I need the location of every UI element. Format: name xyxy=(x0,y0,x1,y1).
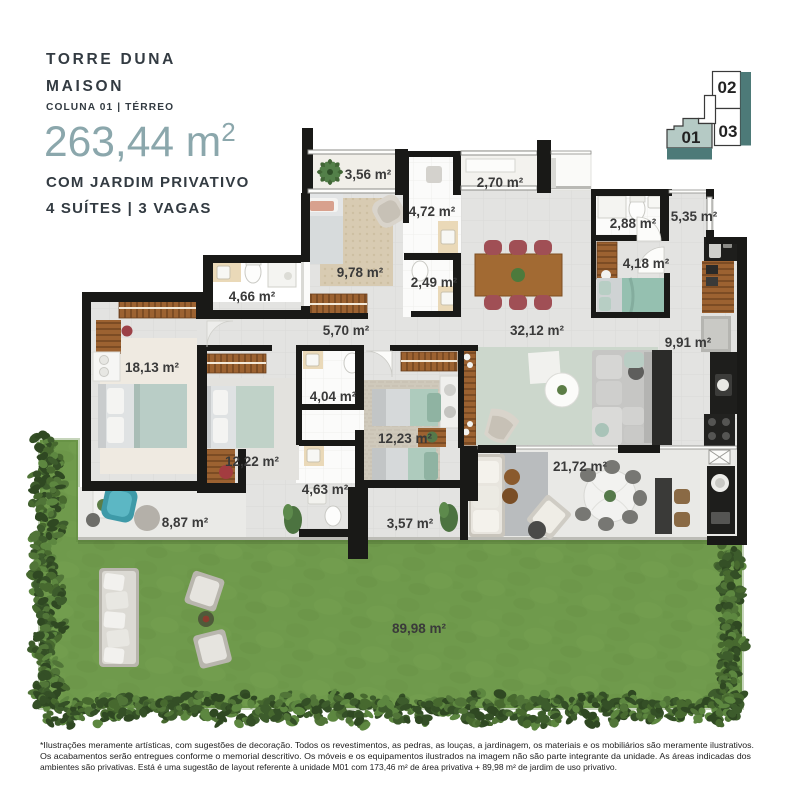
svg-text:MAISON: MAISON xyxy=(46,78,124,95)
svg-text:8,87 m²: 8,87 m² xyxy=(162,515,209,530)
svg-text:32,12 m²: 32,12 m² xyxy=(510,323,565,338)
svg-text:3,56 m²: 3,56 m² xyxy=(345,167,392,182)
svg-text:9,78 m²: 9,78 m² xyxy=(337,265,384,280)
svg-text:2,88 m²: 2,88 m² xyxy=(610,216,657,231)
svg-text:12,23 m²: 12,23 m² xyxy=(378,431,433,446)
svg-text:4,18 m²: 4,18 m² xyxy=(623,256,670,271)
svg-text:TORRE DUNA: TORRE DUNA xyxy=(46,51,176,68)
svg-text:263,44 m2: 263,44 m2 xyxy=(44,117,236,166)
svg-text:COLUNA 01 | TÉRREO: COLUNA 01 | TÉRREO xyxy=(46,100,174,113)
svg-text:9,91 m²: 9,91 m² xyxy=(665,335,712,350)
svg-text:5,70 m²: 5,70 m² xyxy=(323,323,370,338)
svg-text:02: 02 xyxy=(718,78,737,97)
svg-text:03: 03 xyxy=(719,122,738,141)
svg-text:21,72 m²: 21,72 m² xyxy=(553,459,608,474)
svg-text:3,57 m²: 3,57 m² xyxy=(387,516,434,531)
svg-text:4,63 m²: 4,63 m² xyxy=(302,482,349,497)
svg-text:18,13 m²: 18,13 m² xyxy=(125,360,180,375)
svg-text:12,22 m²: 12,22 m² xyxy=(225,454,280,469)
svg-text:Os acabamentos serão entregues: Os acabamentos serão entregues conforme … xyxy=(40,752,751,761)
svg-text:ambientes são privativas. Está: ambientes são privativas. Está é uma sug… xyxy=(40,763,617,772)
svg-text:2,49 m²: 2,49 m² xyxy=(411,275,458,290)
svg-text:5,35 m²: 5,35 m² xyxy=(671,209,718,224)
svg-text:COM JARDIM PRIVATIVO: COM JARDIM PRIVATIVO xyxy=(46,174,249,191)
svg-text:2,70 m²: 2,70 m² xyxy=(477,175,524,190)
svg-text:4,72 m²: 4,72 m² xyxy=(409,204,456,219)
svg-text:89,98 m²: 89,98 m² xyxy=(392,621,447,636)
svg-text:01: 01 xyxy=(682,128,701,147)
svg-text:4,66 m²: 4,66 m² xyxy=(229,289,276,304)
svg-text:4 SUÍTES | 3 VAGAS: 4 SUÍTES | 3 VAGAS xyxy=(46,200,212,217)
svg-text:*Ilustrações meramente artísti: *Ilustrações meramente artísticas, com s… xyxy=(40,741,754,750)
svg-text:4,04 m²: 4,04 m² xyxy=(310,389,357,404)
